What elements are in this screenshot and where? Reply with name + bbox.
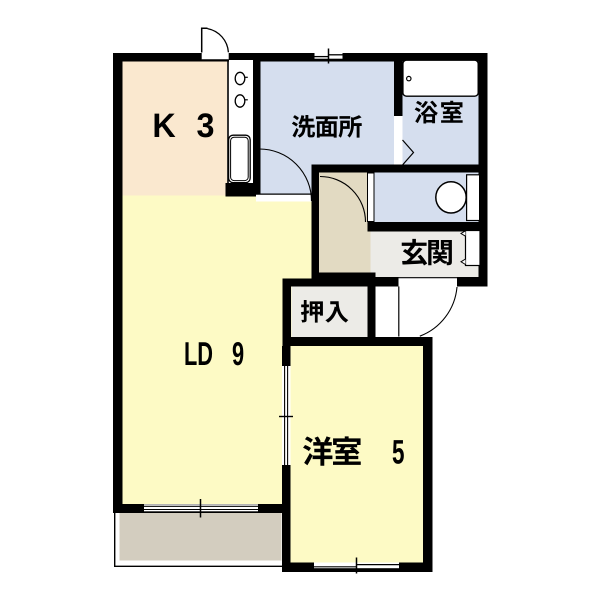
svg-text:5: 5: [392, 434, 404, 472]
svg-text:9: 9: [232, 335, 244, 372]
svg-text:3: 3: [197, 107, 215, 145]
svg-text:K: K: [152, 107, 176, 145]
svg-text:LD: LD: [184, 335, 213, 372]
